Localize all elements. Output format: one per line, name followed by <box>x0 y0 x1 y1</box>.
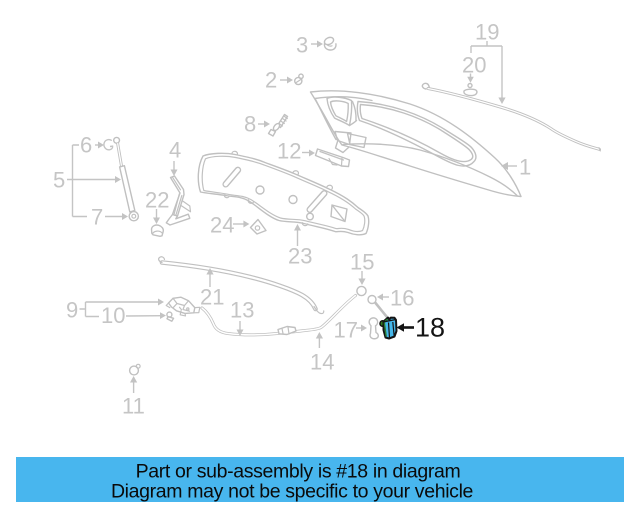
svg-text:15: 15 <box>350 250 374 275</box>
svg-text:4: 4 <box>169 138 181 163</box>
svg-text:21: 21 <box>200 285 224 310</box>
svg-text:16: 16 <box>390 286 414 311</box>
svg-text:20: 20 <box>462 53 486 78</box>
svg-text:Part or sub-assembly is #18 in: Part or sub-assembly is #18 in diagram <box>136 461 461 483</box>
svg-text:24: 24 <box>210 213 234 238</box>
svg-text:12: 12 <box>277 139 301 164</box>
svg-text:3: 3 <box>296 33 308 58</box>
svg-text:14: 14 <box>310 350 334 375</box>
svg-text:8: 8 <box>244 112 256 137</box>
svg-text:18: 18 <box>415 313 445 343</box>
svg-text:13: 13 <box>230 298 254 323</box>
svg-text:1: 1 <box>519 155 531 180</box>
svg-text:22: 22 <box>145 188 169 213</box>
svg-text:19: 19 <box>475 20 499 45</box>
svg-text:6: 6 <box>80 133 92 158</box>
svg-text:2: 2 <box>265 68 277 93</box>
svg-text:7: 7 <box>91 205 103 230</box>
svg-text:10: 10 <box>101 303 125 328</box>
svg-text:Diagram may not be specific to: Diagram may not be specific to your vehi… <box>111 481 473 503</box>
svg-text:5: 5 <box>53 168 65 193</box>
svg-text:17: 17 <box>334 318 358 343</box>
svg-text:9: 9 <box>66 298 78 323</box>
svg-text:11: 11 <box>122 394 145 419</box>
svg-text:23: 23 <box>288 244 312 269</box>
